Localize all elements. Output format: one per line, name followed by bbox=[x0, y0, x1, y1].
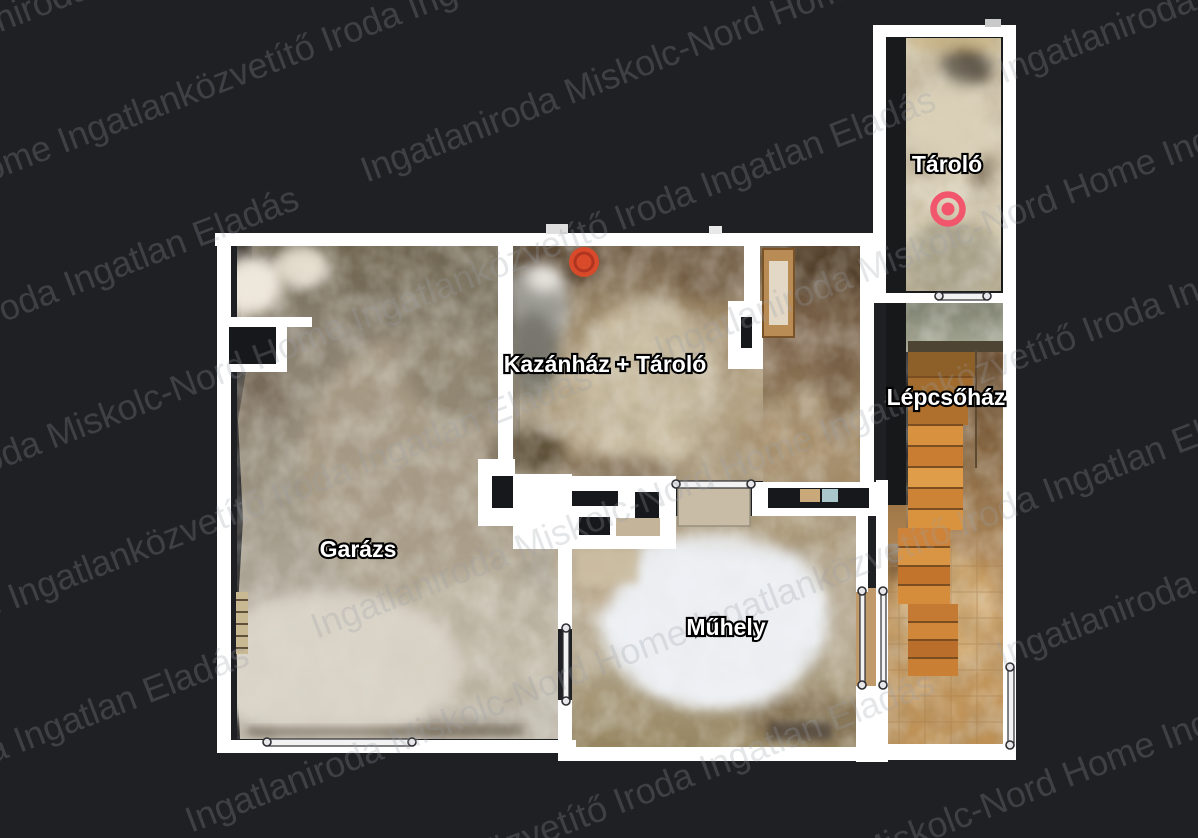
svg-text:Lépcsőház: Lépcsőház bbox=[887, 384, 1006, 410]
svg-text:Tároló: Tároló bbox=[912, 151, 982, 177]
svg-text:Garázs: Garázs bbox=[320, 536, 397, 562]
svg-text:Műhely: Műhely bbox=[686, 614, 765, 640]
svg-text:Kazánház + Tároló: Kazánház + Tároló bbox=[504, 351, 707, 377]
